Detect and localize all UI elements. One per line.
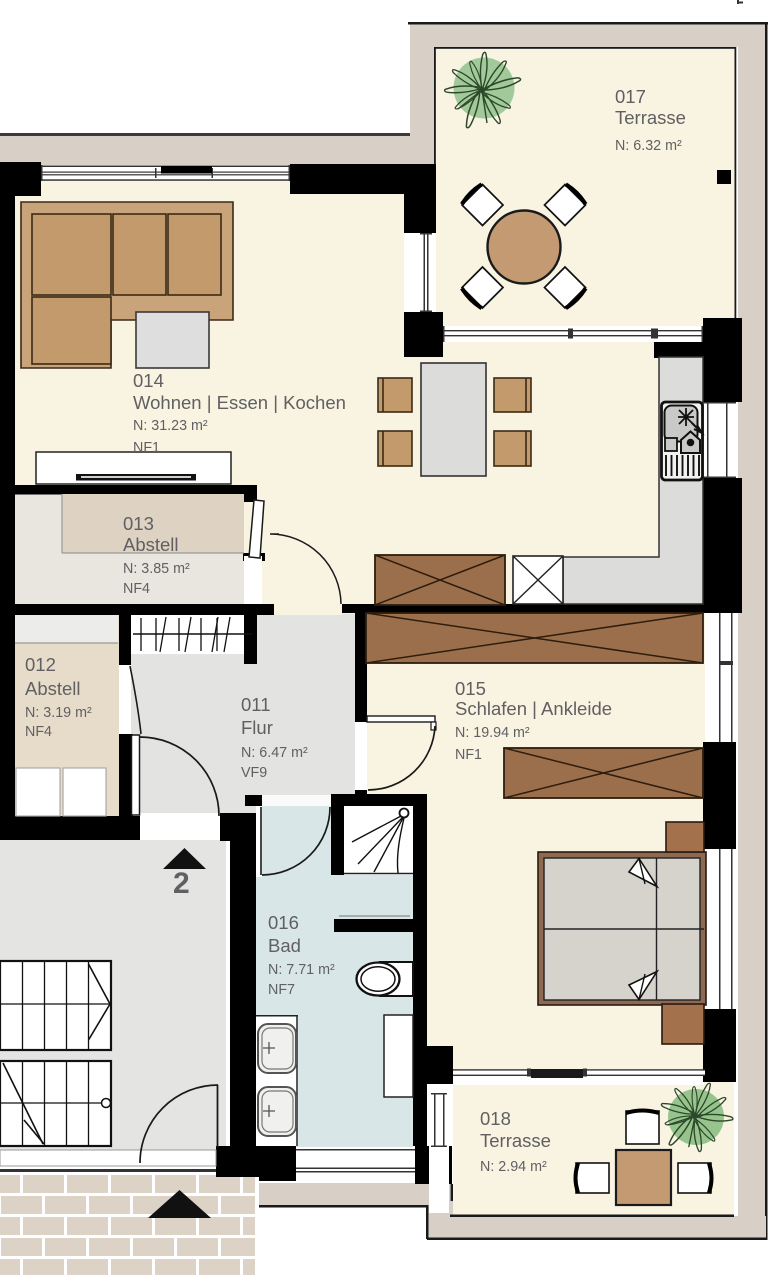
- svg-text:NF4: NF4: [123, 581, 150, 597]
- svg-text:N: 2.94 m²: N: 2.94 m²: [480, 1159, 547, 1175]
- svg-text:N: 3.19 m²: N: 3.19 m²: [25, 705, 92, 721]
- svg-text:Terrasse: Terrasse: [615, 107, 686, 128]
- svg-text:N: 6.47 m²: N: 6.47 m²: [241, 745, 308, 761]
- svg-text:Wohnen | Essen | Kochen: Wohnen | Essen | Kochen: [133, 392, 346, 413]
- svg-text:016: 016: [268, 912, 299, 933]
- svg-text:VF9: VF9: [241, 765, 267, 781]
- svg-text:014: 014: [133, 370, 164, 391]
- svg-text:013: 013: [123, 513, 154, 534]
- svg-text:NF4: NF4: [25, 724, 52, 740]
- svg-text:Schlafen | Ankleide: Schlafen | Ankleide: [455, 698, 612, 719]
- svg-text:Bad: Bad: [268, 935, 301, 956]
- svg-text:NF1: NF1: [133, 440, 160, 456]
- svg-text:N: 3.85 m²: N: 3.85 m²: [123, 561, 190, 577]
- svg-text:N: 31.23 m²: N: 31.23 m²: [133, 418, 208, 434]
- svg-text:2: 2: [173, 867, 190, 900]
- svg-text:NF7: NF7: [268, 982, 295, 998]
- svg-text:N: 19.94 m²: N: 19.94 m²: [455, 725, 530, 741]
- svg-text:017: 017: [615, 86, 646, 107]
- svg-text:011: 011: [241, 694, 271, 715]
- svg-text:Flur: Flur: [241, 717, 273, 738]
- svg-text:018: 018: [480, 1108, 511, 1129]
- svg-text:Abstell: Abstell: [25, 678, 81, 699]
- svg-text:NF1: NF1: [455, 747, 482, 763]
- svg-text:Terrasse: Terrasse: [480, 1130, 551, 1151]
- svg-text:Abstell: Abstell: [123, 534, 179, 555]
- svg-text:N: 6.32 m²: N: 6.32 m²: [615, 138, 682, 154]
- svg-text:N: 7.71 m²: N: 7.71 m²: [268, 962, 335, 978]
- svg-text:015: 015: [455, 678, 486, 699]
- svg-text:012: 012: [25, 654, 56, 675]
